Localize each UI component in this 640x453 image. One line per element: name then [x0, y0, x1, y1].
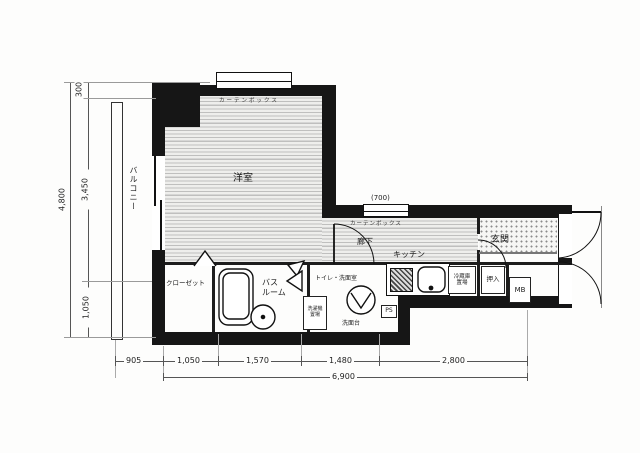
dim-bottom-total: 6,900 — [330, 372, 357, 381]
curtain-box-main-label: カーテンボックス — [219, 96, 279, 104]
dim-left-seg-mid: 3,450 — [81, 170, 90, 210]
balcony-label: バルコニー — [128, 166, 139, 211]
dim-leader — [64, 82, 210, 83]
fixtures-overlay — [0, 0, 640, 453]
dim-bottom-balcony: 905 — [124, 356, 143, 365]
kitchen-label: キッチン — [393, 249, 425, 260]
dim-bottom-seg1: 1,050 — [175, 356, 202, 365]
entrance-label: 玄関 — [491, 232, 509, 245]
dim-left-total-line — [70, 82, 71, 337]
bathroom-label-line2: ルーム — [262, 288, 286, 298]
hallway-label: 廊下 — [357, 236, 373, 247]
dim-tick — [163, 356, 164, 366]
dim-bottom-seg3: 1,480 — [327, 356, 354, 365]
dim-tick — [527, 373, 528, 381]
dim-tick — [379, 356, 380, 366]
toilet-washroom-label: トイレ・洗面室 — [315, 273, 357, 282]
dim-extension — [527, 310, 528, 378]
dim-tick — [527, 356, 528, 366]
dim-left-seg-top: 300 — [75, 73, 84, 107]
dim-leader — [82, 98, 156, 99]
dim-tick — [218, 356, 219, 366]
dim-tick — [301, 356, 302, 366]
hall-window-width-label: (700) — [371, 194, 390, 202]
dim-left-total: 4,800 — [58, 180, 67, 220]
vanity-label: 洗面台 — [342, 318, 360, 327]
curtain-box-hall-label: カーテンボックス — [350, 219, 402, 227]
main-room-label: 洋室 — [233, 169, 253, 184]
dim-tick — [115, 356, 116, 366]
dim-leader — [64, 337, 156, 338]
closet-label: クローゼット — [166, 277, 205, 287]
dim-bottom-seg2: 1,570 — [244, 356, 271, 365]
dim-leader — [82, 281, 152, 282]
dim-bottom-seg4: 2,800 — [440, 356, 467, 365]
floor-plan: 冷蔵庫 置場 押入 MB 洗濯機 置場 PS — [0, 0, 640, 453]
bathroom-label-line1: バス — [262, 278, 286, 288]
dim-left-seg-bottom: 1,050 — [82, 288, 91, 328]
dim-tick — [163, 373, 164, 381]
bathroom-label: バス ルーム — [262, 278, 286, 297]
